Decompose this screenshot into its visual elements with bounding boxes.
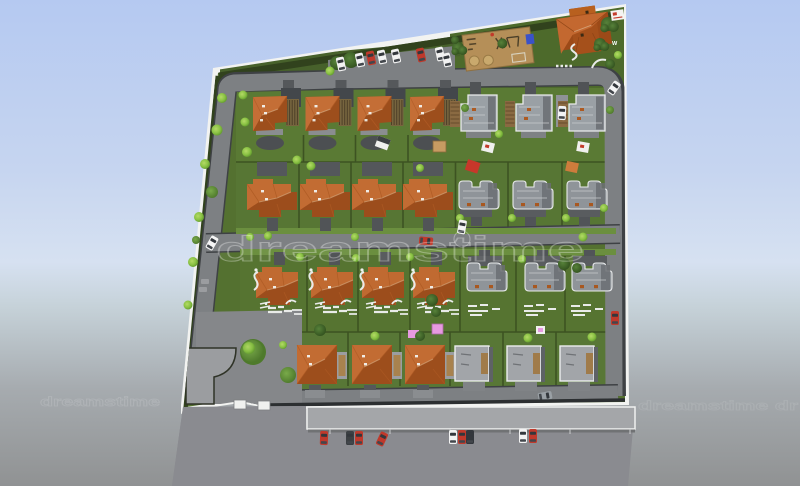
svg-text:dreamstime: dreamstime [216, 230, 584, 269]
svg-text:dreamstime dr: dreamstime dr [638, 398, 798, 413]
svg-text:dreamstime: dreamstime [40, 394, 160, 409]
svg-text:W: W [612, 41, 618, 47]
